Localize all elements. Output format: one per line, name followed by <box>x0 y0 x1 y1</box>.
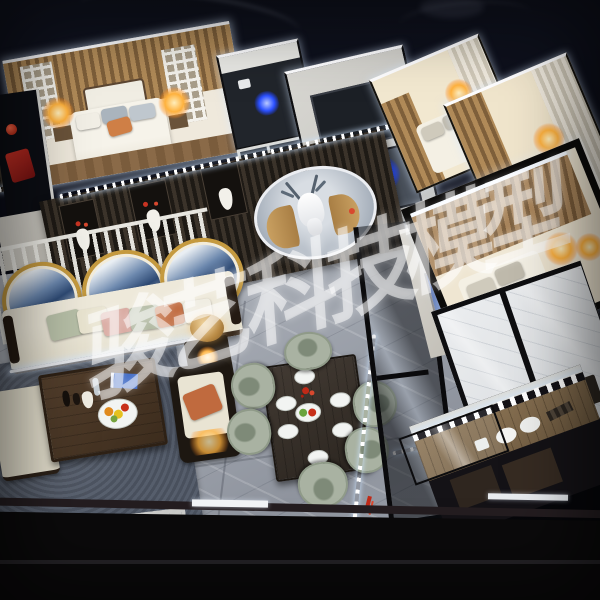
partition-crossbar <box>376 369 428 380</box>
fruit-plate <box>96 396 140 432</box>
fruit-red <box>120 403 129 412</box>
fruit-green <box>110 415 118 423</box>
armchair <box>168 360 243 464</box>
brass-floor-lamp <box>190 314 224 342</box>
red-ornament <box>5 148 36 183</box>
dinner-plate <box>275 395 298 413</box>
dark-vase <box>72 393 81 406</box>
fascia-highlight-strip <box>192 499 268 507</box>
bathroom-fixture <box>238 78 252 89</box>
kitchen-lower-cabinet <box>450 465 502 510</box>
dinner-plate <box>329 391 352 409</box>
medallion-wood-wing-left <box>263 204 301 251</box>
glass-candlestick <box>92 377 101 396</box>
kitchen-utensils <box>546 401 574 421</box>
architectural-model-photo: 骏 艺 科 技 模 型 <box>0 0 600 600</box>
fruit-green <box>299 408 308 417</box>
bathroom-blue-light <box>253 89 281 117</box>
red-flower <box>143 201 149 207</box>
blue-book <box>110 373 138 389</box>
bedside-lamp-left <box>40 95 77 132</box>
toy-ball <box>6 124 17 135</box>
kitchen-lower-cabinet <box>502 448 563 500</box>
coffee-table <box>38 357 168 462</box>
bedside-lamp-right <box>156 84 193 121</box>
red-flower <box>154 201 159 206</box>
fruit-red <box>308 408 317 417</box>
red-flower <box>84 222 89 227</box>
fruit-platter <box>294 401 322 423</box>
dark-vase <box>62 390 71 407</box>
red-flower <box>75 221 81 227</box>
white-vase <box>217 187 234 211</box>
fascia-sheen <box>0 560 600 564</box>
kitchen-sink-bowl <box>518 414 543 435</box>
dinner-plate <box>277 423 300 441</box>
white-vase <box>81 391 95 410</box>
red-flower-centerpiece <box>302 387 310 395</box>
